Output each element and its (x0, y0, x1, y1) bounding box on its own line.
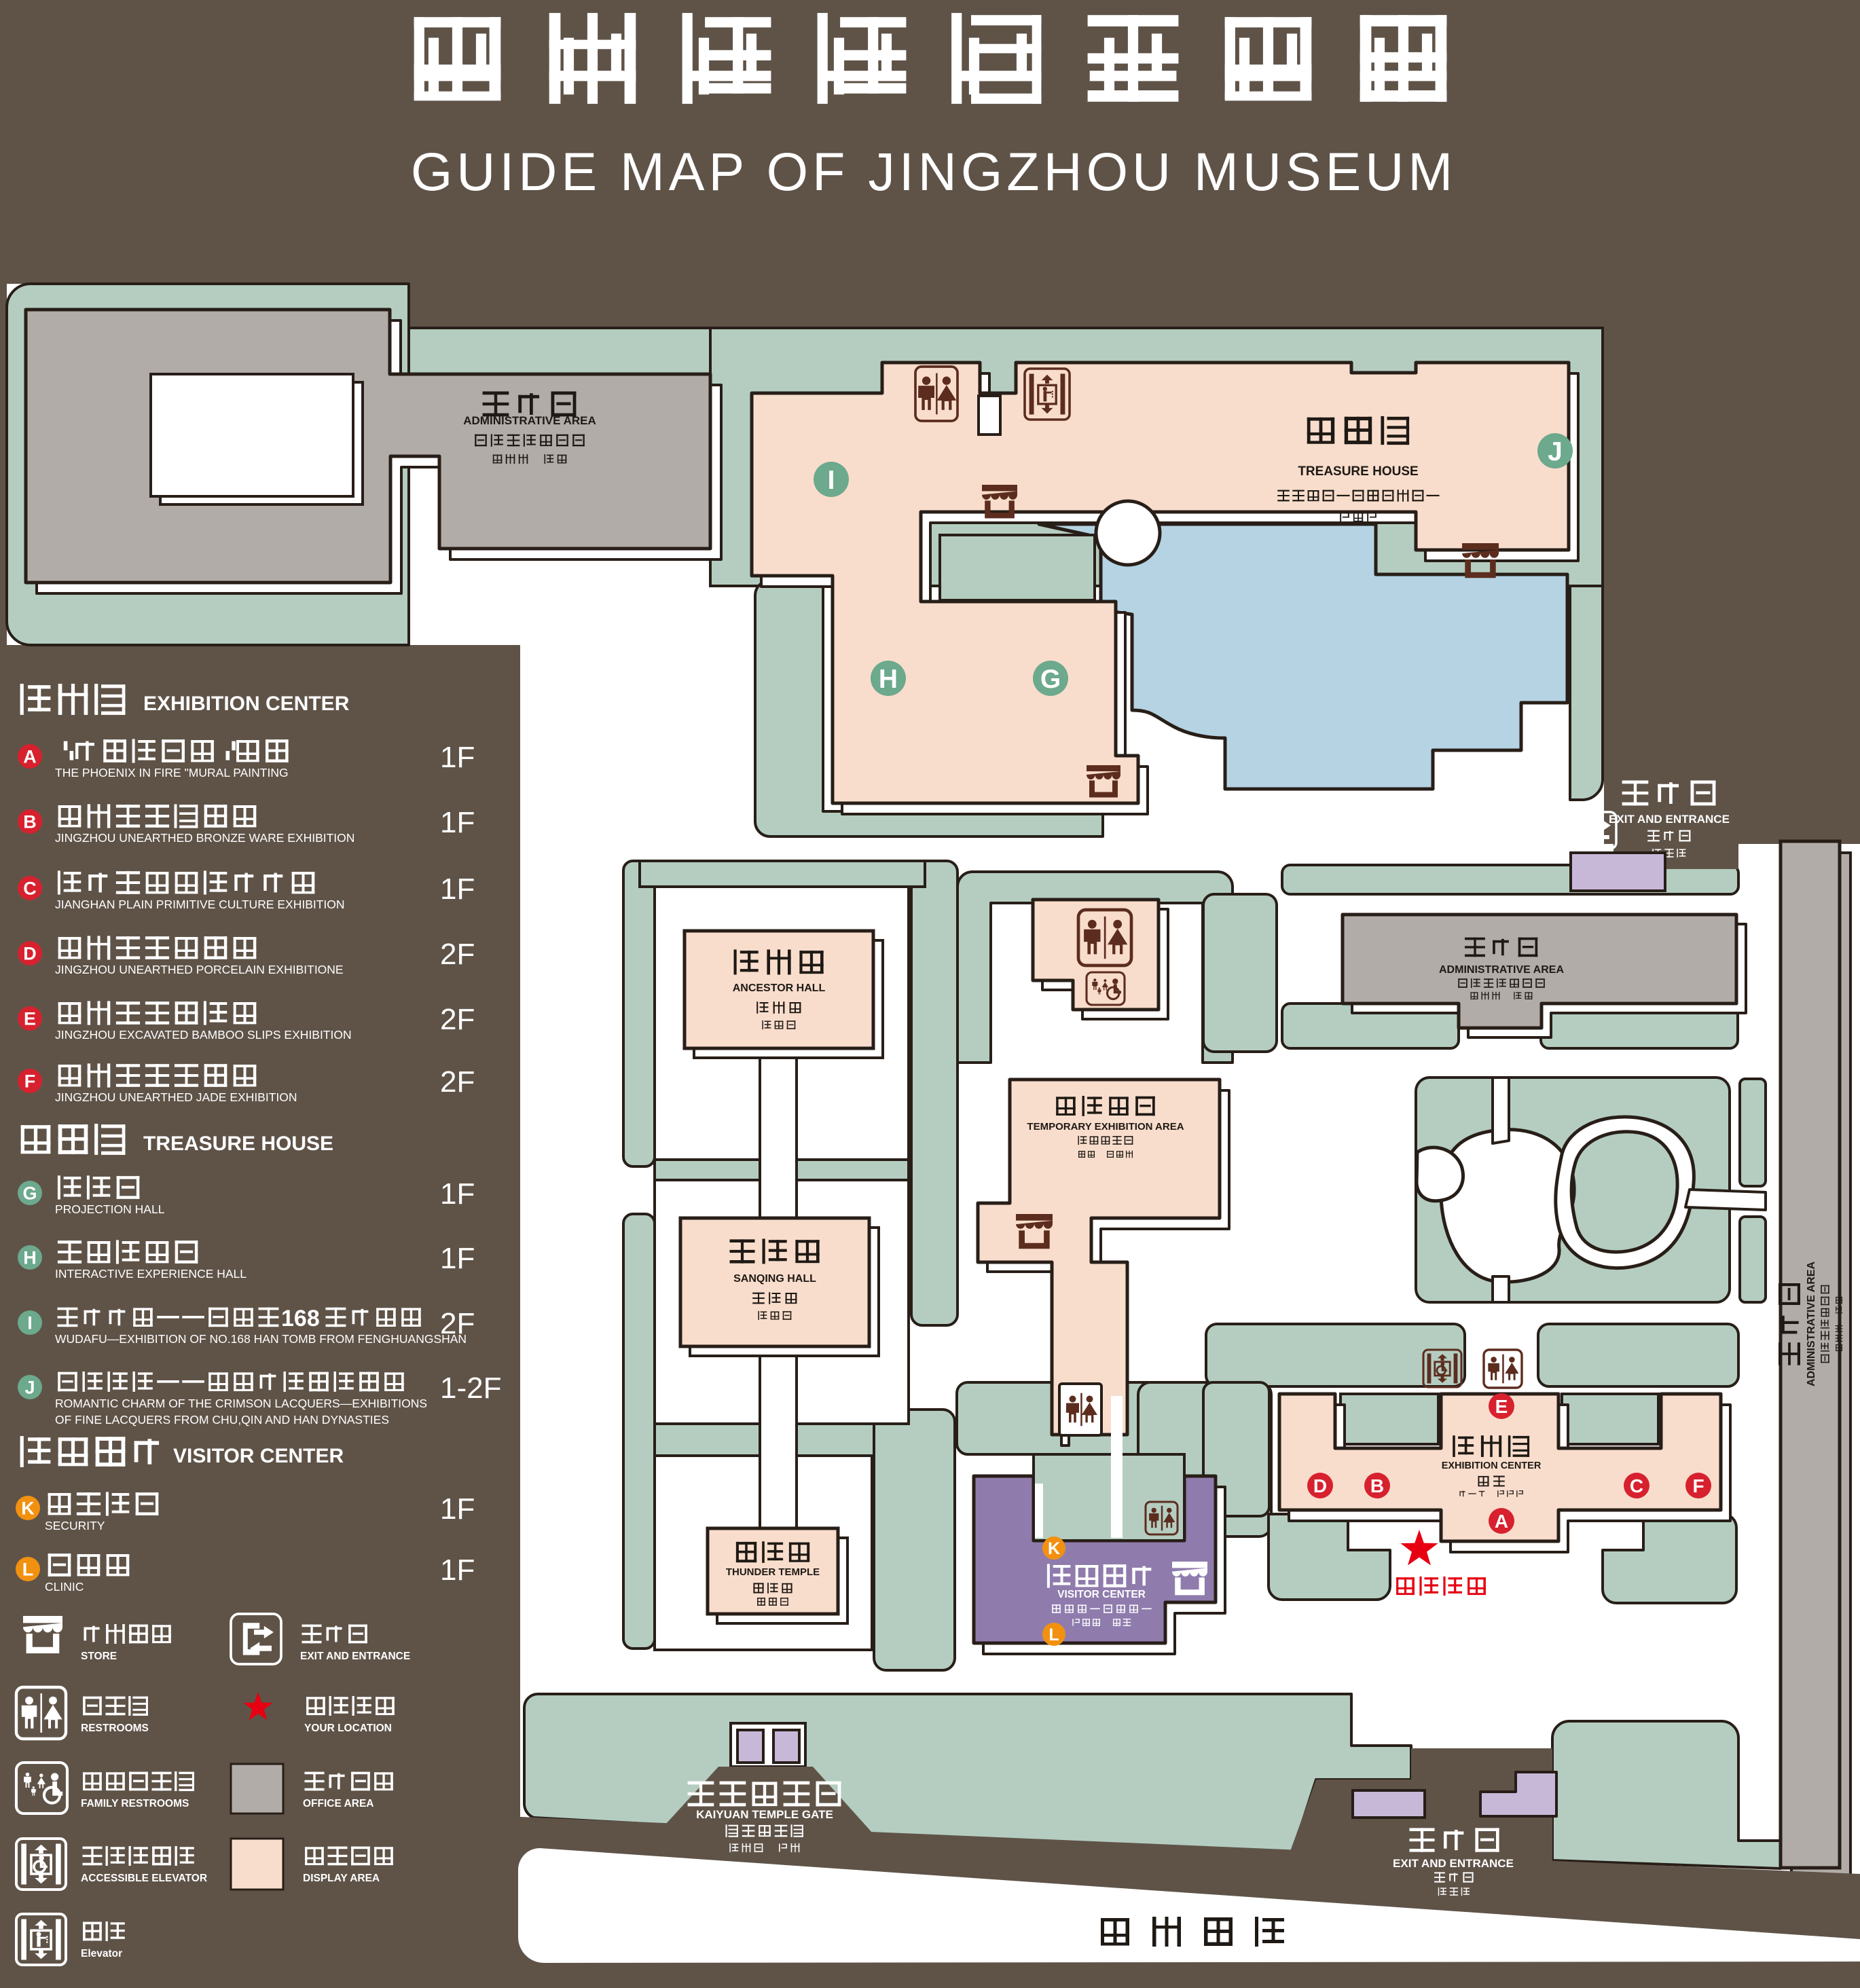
svg-text:A: A (23, 747, 37, 767)
svg-text:1F: 1F (440, 1553, 475, 1587)
svg-text:FAMILY RESTROOMS: FAMILY RESTROOMS (81, 1798, 189, 1809)
svg-text:D: D (1313, 1475, 1327, 1496)
svg-text:EXHIBITION CENTER: EXHIBITION CENTER (143, 693, 350, 715)
svg-text:J: J (24, 1378, 35, 1398)
svg-text:EXHIBITION CENTER: EXHIBITION CENTER (1442, 1460, 1542, 1471)
svg-text:J: J (1548, 437, 1563, 466)
svg-text:F: F (24, 1071, 36, 1092)
svg-text:EXIT AND ENTRANCE: EXIT AND ENTRANCE (1609, 813, 1730, 826)
svg-text:TEMPORARY EXHIBITION AREA: TEMPORARY EXHIBITION AREA (1027, 1121, 1184, 1133)
svg-text:Elevator: Elevator (81, 1948, 122, 1959)
svg-text:L: L (1048, 1625, 1059, 1644)
svg-text:ADMINISTRATIVE AREA: ADMINISTRATIVE AREA (1806, 1262, 1817, 1386)
svg-text:2F: 2F (440, 1065, 475, 1099)
svg-text:K: K (1048, 1539, 1060, 1558)
svg-text:CLINIC: CLINIC (45, 1580, 84, 1594)
svg-text:SANQING HALL: SANQING HALL (733, 1273, 816, 1285)
svg-text:ADMINISTRATIVE AREA: ADMINISTRATIVE AREA (1439, 964, 1564, 976)
svg-text:H: H (879, 665, 898, 694)
svg-text:EXIT AND ENTRANCE: EXIT AND ENTRANCE (1393, 1857, 1514, 1870)
svg-text:JINGZHOU UNEARTHED PORCELAIN E: JINGZHOU UNEARTHED PORCELAIN EXHIBITIONE (55, 963, 344, 976)
svg-text:VISITOR CENTER: VISITOR CENTER (173, 1445, 344, 1467)
svg-text:JINGZHOU EXCAVATED BAMBOO SLIP: JINGZHOU EXCAVATED BAMBOO SLIPS EXHIBITI… (55, 1028, 352, 1042)
svg-text:1F: 1F (440, 806, 475, 839)
svg-text:ANCESTOR HALL: ANCESTOR HALL (733, 982, 826, 994)
svg-text:I: I (27, 1313, 33, 1333)
svg-text:SECURITY: SECURITY (45, 1519, 105, 1532)
svg-text:JIANGHAN PLAIN PRIMITIVE CULTU: JIANGHAN PLAIN PRIMITIVE CULTURE EXHIBIT… (55, 898, 345, 911)
svg-text:ACCESSIBLE ELEVATOR: ACCESSIBLE ELEVATOR (81, 1873, 207, 1884)
svg-text:YOUR LOCATION: YOUR LOCATION (304, 1723, 392, 1734)
svg-text:THE PHOENIX IN FIRE "MURAL PAI: THE PHOENIX IN FIRE "MURAL PAINTING (55, 766, 289, 779)
svg-text:C: C (1630, 1475, 1643, 1496)
svg-text:L: L (22, 1560, 34, 1580)
svg-text:2F: 2F (440, 1307, 475, 1340)
svg-text:1-2F: 1-2F (440, 1372, 501, 1405)
svg-text:1F: 1F (440, 872, 475, 906)
svg-text:STORE: STORE (81, 1651, 117, 1662)
svg-text:INTERACTIVE EXPERIENCE HALL: INTERACTIVE EXPERIENCE HALL (55, 1267, 247, 1281)
svg-text:1F: 1F (440, 1177, 475, 1211)
svg-text:B: B (23, 812, 37, 832)
svg-text:JINGZHOU UNEARTHED JADE EXHIBI: JINGZHOU UNEARTHED JADE EXHIBITION (55, 1090, 297, 1104)
svg-text:A: A (1495, 1511, 1508, 1532)
svg-text:PROJECTION HALL: PROJECTION HALL (55, 1202, 165, 1216)
svg-text:JINGZHOU UNEARTHED BRONZE WARE: JINGZHOU UNEARTHED BRONZE WARE EXHIBITIO… (55, 831, 354, 845)
svg-text:OF FINE LACQUERS FROM CHU,QIN: OF FINE LACQUERS FROM CHU,QIN AND HAN DY… (55, 1413, 389, 1426)
svg-text:RESTROOMS: RESTROOMS (81, 1723, 149, 1734)
svg-text:VISITOR CENTER: VISITOR CENTER (1057, 1589, 1146, 1600)
svg-text:I: I (828, 466, 835, 495)
svg-text:1F: 1F (440, 1242, 475, 1275)
svg-text:G: G (22, 1183, 37, 1204)
svg-text:2F: 2F (440, 1003, 475, 1036)
svg-text:E: E (1495, 1396, 1508, 1417)
svg-text:WUDAFU—EXHIBITION OF NO.168 HA: WUDAFU—EXHIBITION OF NO.168 HAN TOMB FRO… (55, 1332, 467, 1346)
svg-text:F: F (1692, 1475, 1704, 1496)
svg-text:TREASURE HOUSE: TREASURE HOUSE (1298, 464, 1418, 479)
svg-text:H: H (23, 1248, 37, 1268)
svg-text:TREASURE HOUSE: TREASURE HOUSE (143, 1133, 333, 1155)
svg-text:DISPLAY AREA: DISPLAY AREA (303, 1873, 380, 1884)
svg-text:K: K (21, 1498, 35, 1519)
svg-text:D: D (23, 944, 37, 964)
svg-text:E: E (24, 1009, 36, 1029)
svg-text:1F: 1F (440, 741, 475, 774)
svg-text:THUNDER TEMPLE: THUNDER TEMPLE (726, 1566, 820, 1578)
svg-text:C: C (23, 879, 37, 899)
svg-text:1F: 1F (440, 1492, 475, 1526)
svg-text:B: B (1370, 1475, 1384, 1496)
svg-text:ADMINISTRATIVE AREA: ADMINISTRATIVE AREA (463, 414, 596, 427)
svg-text:2F: 2F (440, 938, 475, 971)
svg-text:ROMANTIC CHARM OF THE CRIMSON: ROMANTIC CHARM OF THE CRIMSON LACQUERS—E… (55, 1397, 427, 1410)
svg-text:EXIT AND ENTRANCE: EXIT AND ENTRANCE (300, 1651, 410, 1662)
svg-text:OFFICE AREA: OFFICE AREA (303, 1798, 373, 1809)
svg-text:KAIYUAN TEMPLE GATE: KAIYUAN TEMPLE GATE (696, 1808, 833, 1821)
svg-text:168: 168 (281, 1306, 320, 1331)
svg-text:GUIDE MAP OF JINGZHOU MUSEUM: GUIDE MAP OF JINGZHOU MUSEUM (411, 141, 1457, 202)
svg-text:G: G (1040, 665, 1061, 694)
